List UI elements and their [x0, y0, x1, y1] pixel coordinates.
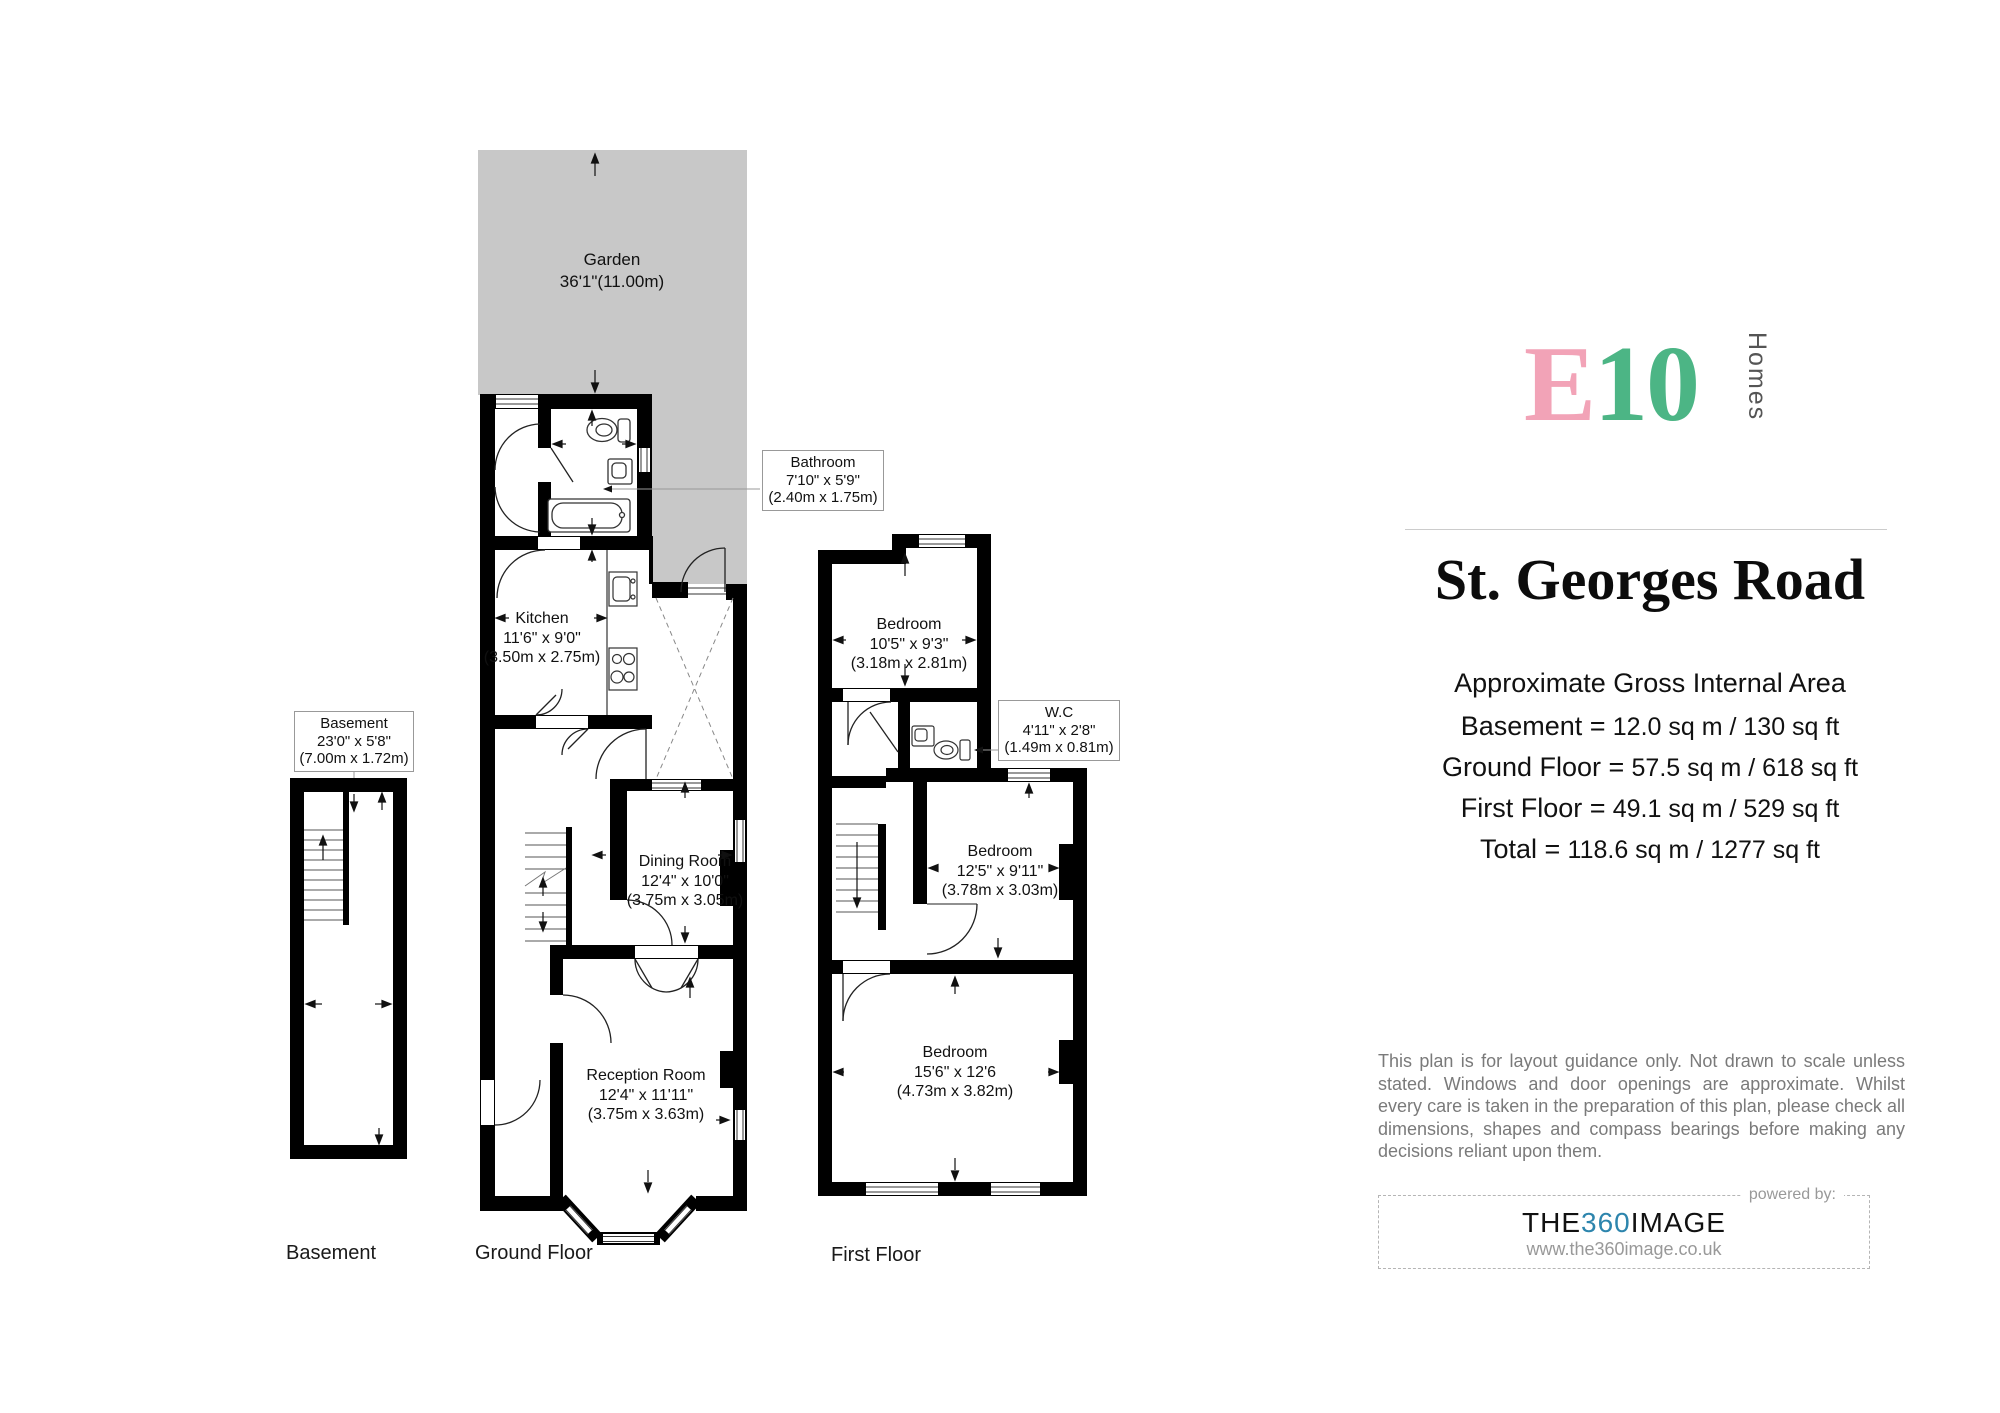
- bedroom-middle-label: Bedroom 12'5" x 9'11" (3.78m x 3.03m): [915, 842, 1085, 901]
- basement-dimension-box: Basement 23'0" x 5'8" (7.00m x 1.72m): [294, 711, 414, 772]
- room-name: Basement: [299, 715, 409, 733]
- area-label: Total =: [1480, 834, 1560, 864]
- logo-letter-e: E: [1524, 325, 1594, 444]
- room-dims-metric: (3.75m x 3.05m): [600, 891, 770, 911]
- ground-floor-label: Ground Floor: [475, 1242, 593, 1265]
- room-name: Bathroom: [767, 454, 879, 472]
- area-row-first: First Floor = 49.1 sq m / 529 sq ft: [1350, 788, 1950, 829]
- room-name: Bedroom: [824, 615, 994, 635]
- room-dims-imperial: 15'6" x 12'6: [870, 1063, 1040, 1083]
- area-row-total: Total = 118.6 sq m / 1277 sq ft: [1350, 829, 1950, 870]
- area-label: First Floor =: [1461, 793, 1606, 823]
- room-dims: 36'1"(11.00m): [532, 271, 692, 293]
- toilet-icon: [587, 419, 630, 443]
- bay-window: [561, 1199, 696, 1245]
- wc-dimension-box: W.C 4'11" x 2'8" (1.49m x 0.81m): [998, 700, 1120, 761]
- brand-image: IMAGE: [1631, 1207, 1726, 1238]
- sink-icon: [912, 726, 934, 746]
- room-dims-metric: (3.78m x 3.03m): [915, 881, 1085, 901]
- the360image-url: www.the360image.co.uk: [1379, 1238, 1869, 1260]
- logo-homes-text: Homes: [1742, 332, 1771, 452]
- toilet-icon: [934, 740, 970, 760]
- agency-logo: E10 Homes: [1524, 330, 1824, 460]
- divider-line: [1405, 529, 1887, 530]
- logo-number-10: 10: [1594, 325, 1698, 444]
- basement-plan-drawing: [284, 708, 414, 1168]
- room-dims-metric: (3.18m x 2.81m): [824, 654, 994, 674]
- first-floor-label: First Floor: [831, 1244, 921, 1267]
- room-name: W.C: [1003, 704, 1115, 722]
- room-dims-metric: (2.40m x 1.75m): [767, 489, 879, 507]
- room-name: Bedroom: [870, 1043, 1040, 1063]
- logo-e10: E10: [1524, 330, 1824, 440]
- room-dims-imperial: 12'5" x 9'11": [915, 862, 1085, 882]
- area-heading: Approximate Gross Internal Area: [1350, 668, 1950, 698]
- basement-floor-label: Basement: [286, 1242, 376, 1265]
- bathroom-dimension-box: Bathroom 7'10" x 5'9" (2.40m x 1.75m): [762, 450, 884, 511]
- area-value: 12.0 sq m / 130 sq ft: [1613, 713, 1840, 741]
- sink-icon: [608, 459, 632, 484]
- the360image-brand: THE360IMAGE: [1379, 1208, 1869, 1238]
- area-label: Ground Floor =: [1442, 752, 1624, 782]
- room-name: Reception Room: [556, 1066, 736, 1086]
- area-value: 49.1 sq m / 529 sq ft: [1613, 795, 1840, 823]
- void-x-area: [656, 598, 733, 779]
- room-name: Kitchen: [457, 609, 627, 629]
- brand-360: 360: [1581, 1207, 1631, 1238]
- room-dims-imperial: 11'6" x 9'0": [457, 629, 627, 649]
- brand-the: THE: [1522, 1207, 1581, 1238]
- leader-arrow: [603, 486, 612, 493]
- room-dims-imperial: 4'11" x 2'8": [1003, 722, 1115, 740]
- dining-room-label: Dining Room 12'4" x 10'0" (3.75m x 3.05m…: [600, 852, 770, 911]
- room-dims-imperial: 12'4" x 11'11": [556, 1086, 736, 1106]
- room-dims-metric: (1.49m x 0.81m): [1003, 739, 1115, 757]
- room-dims-imperial: 7'10" x 5'9": [767, 472, 879, 490]
- room-dims-imperial: 10'5" x 9'3": [824, 635, 994, 655]
- room-name: Bedroom: [915, 842, 1085, 862]
- powered-by-box: powered by: THE360IMAGE www.the360image.…: [1378, 1195, 1870, 1269]
- kitchen-label: Kitchen 11'6" x 9'0" (3.50m x 2.75m): [457, 609, 627, 668]
- floorplan-page: Basement 23'0" x 5'8" (7.00m x 1.72m): [0, 0, 2000, 1413]
- room-dims-metric: (3.75m x 3.63m): [556, 1105, 736, 1125]
- disclaimer-text: This plan is for layout guidance only. N…: [1378, 1050, 1905, 1163]
- reception-room-label: Reception Room 12'4" x 11'11" (3.75m x 3…: [556, 1066, 736, 1125]
- room-name: Dining Room: [600, 852, 770, 872]
- area-row-ground: Ground Floor = 57.5 sq m / 618 sq ft: [1350, 747, 1950, 788]
- garden-label: Garden 36'1"(11.00m): [532, 249, 692, 293]
- bedroom-back-label: Bedroom 10'5" x 9'3" (3.18m x 2.81m): [824, 615, 994, 674]
- area-summary: Approximate Gross Internal Area Basement…: [1350, 668, 1950, 870]
- powered-by-label: powered by:: [1741, 1186, 1844, 1204]
- room-dims-imperial: 23'0" x 5'8": [299, 733, 409, 751]
- room-dims-metric: (7.00m x 1.72m): [299, 750, 409, 768]
- room-dims-metric: (3.50m x 2.75m): [457, 648, 627, 668]
- room-name: Garden: [532, 249, 692, 271]
- area-value: 118.6 sq m / 1277 sq ft: [1568, 836, 1820, 864]
- room-dims-metric: (4.73m x 3.82m): [870, 1082, 1040, 1102]
- area-label: Basement =: [1461, 711, 1606, 741]
- area-value: 57.5 sq m / 618 sq ft: [1632, 754, 1859, 782]
- page-title: St. Georges Road: [1350, 548, 1950, 612]
- room-dims-imperial: 12'4" x 10'0": [600, 872, 770, 892]
- area-row-basement: Basement = 12.0 sq m / 130 sq ft: [1350, 706, 1950, 747]
- bedroom-front-label: Bedroom 15'6" x 12'6 (4.73m x 3.82m): [870, 1043, 1040, 1102]
